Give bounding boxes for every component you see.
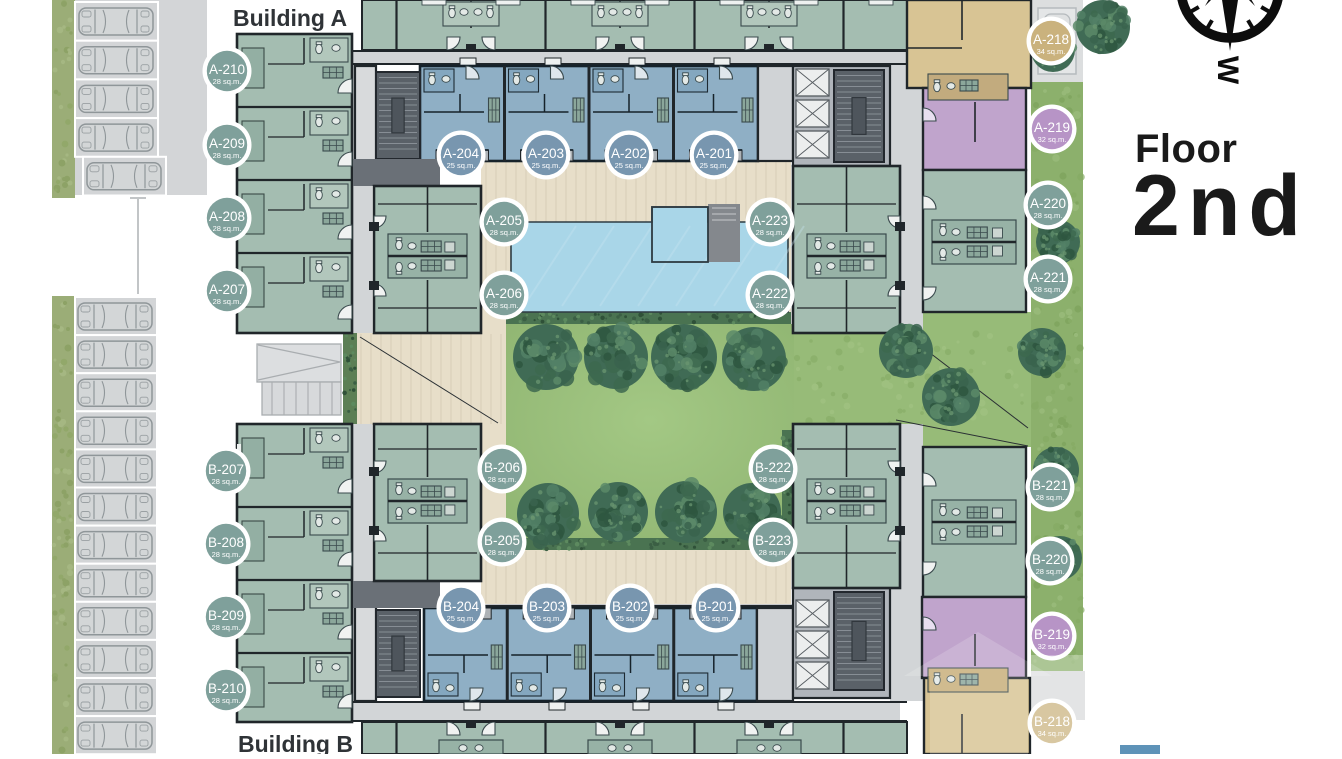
svg-text:28 sq.m.: 28 sq.m.: [1034, 211, 1063, 220]
svg-text:28 sq.m.: 28 sq.m.: [488, 475, 517, 484]
svg-text:B-202: B-202: [612, 599, 648, 614]
svg-text:A-222: A-222: [752, 286, 788, 301]
svg-text:28 sq.m.: 28 sq.m.: [213, 77, 242, 86]
svg-text:25 sq.m.: 25 sq.m.: [447, 614, 476, 623]
svg-text:25 sq.m.: 25 sq.m.: [702, 614, 731, 623]
svg-text:W: W: [1211, 56, 1244, 85]
svg-text:32 sq.m.: 32 sq.m.: [1038, 135, 1067, 144]
svg-text:28 sq.m.: 28 sq.m.: [756, 228, 785, 237]
svg-text:Building A: Building A: [233, 5, 347, 31]
svg-text:25 sq.m.: 25 sq.m.: [532, 161, 561, 170]
svg-text:A-223: A-223: [752, 213, 788, 228]
svg-text:25 sq.m.: 25 sq.m.: [447, 161, 476, 170]
svg-text:B-219: B-219: [1034, 627, 1070, 642]
svg-text:A-219: A-219: [1034, 120, 1070, 135]
svg-text:B-223: B-223: [755, 533, 791, 548]
svg-text:28 sq.m.: 28 sq.m.: [1036, 493, 1065, 502]
svg-text:A-221: A-221: [1030, 270, 1066, 285]
svg-text:28 sq.m.: 28 sq.m.: [212, 696, 241, 705]
svg-text:B-208: B-208: [208, 535, 244, 550]
svg-text:B-221: B-221: [1032, 478, 1068, 493]
svg-text:28 sq.m.: 28 sq.m.: [213, 224, 242, 233]
svg-text:25 sq.m.: 25 sq.m.: [615, 161, 644, 170]
svg-text:32 sq.m.: 32 sq.m.: [1038, 642, 1067, 651]
svg-text:B-201: B-201: [698, 599, 734, 614]
svg-text:B-222: B-222: [755, 460, 791, 475]
svg-text:A-205: A-205: [486, 213, 522, 228]
svg-text:A-209: A-209: [209, 136, 245, 151]
svg-text:A-208: A-208: [209, 209, 245, 224]
svg-text:B-210: B-210: [208, 681, 244, 696]
svg-text:25 sq.m.: 25 sq.m.: [616, 614, 645, 623]
svg-text:28 sq.m.: 28 sq.m.: [1034, 285, 1063, 294]
svg-text:25 sq.m.: 25 sq.m.: [533, 614, 562, 623]
svg-text:B-204: B-204: [443, 599, 480, 614]
svg-text:28 sq.m.: 28 sq.m.: [759, 475, 788, 484]
svg-text:A-202: A-202: [611, 146, 647, 161]
svg-text:28 sq.m.: 28 sq.m.: [490, 301, 519, 310]
svg-text:A-203: A-203: [528, 146, 564, 161]
svg-text:B-203: B-203: [529, 599, 565, 614]
svg-text:A-218: A-218: [1033, 32, 1069, 47]
svg-text:28 sq.m.: 28 sq.m.: [756, 301, 785, 310]
svg-text:28 sq.m.: 28 sq.m.: [213, 297, 242, 306]
svg-text:25 sq.m.: 25 sq.m.: [700, 161, 729, 170]
svg-text:A-206: A-206: [486, 286, 522, 301]
svg-text:28 sq.m.: 28 sq.m.: [213, 151, 242, 160]
svg-text:B-220: B-220: [1032, 552, 1068, 567]
svg-text:B-206: B-206: [484, 460, 520, 475]
svg-text:2nd: 2nd: [1132, 158, 1309, 254]
svg-text:B-207: B-207: [208, 462, 244, 477]
svg-text:34 sq.m.: 34 sq.m.: [1037, 47, 1066, 56]
svg-text:28 sq.m.: 28 sq.m.: [212, 623, 241, 632]
svg-text:28 sq.m.: 28 sq.m.: [212, 477, 241, 486]
svg-text:A-207: A-207: [209, 282, 245, 297]
svg-text:A-201: A-201: [696, 146, 732, 161]
svg-text:28 sq.m.: 28 sq.m.: [488, 548, 517, 557]
svg-text:28 sq.m.: 28 sq.m.: [212, 550, 241, 559]
svg-text:28 sq.m.: 28 sq.m.: [759, 548, 788, 557]
svg-text:28 sq.m.: 28 sq.m.: [490, 228, 519, 237]
svg-text:28 sq.m.: 28 sq.m.: [1036, 567, 1065, 576]
svg-text:A-204: A-204: [443, 146, 480, 161]
svg-text:B-205: B-205: [484, 533, 520, 548]
svg-text:B-209: B-209: [208, 608, 244, 623]
svg-text:A-210: A-210: [209, 62, 245, 77]
svg-text:Building B: Building B: [238, 731, 353, 754]
svg-text:A-220: A-220: [1030, 196, 1066, 211]
